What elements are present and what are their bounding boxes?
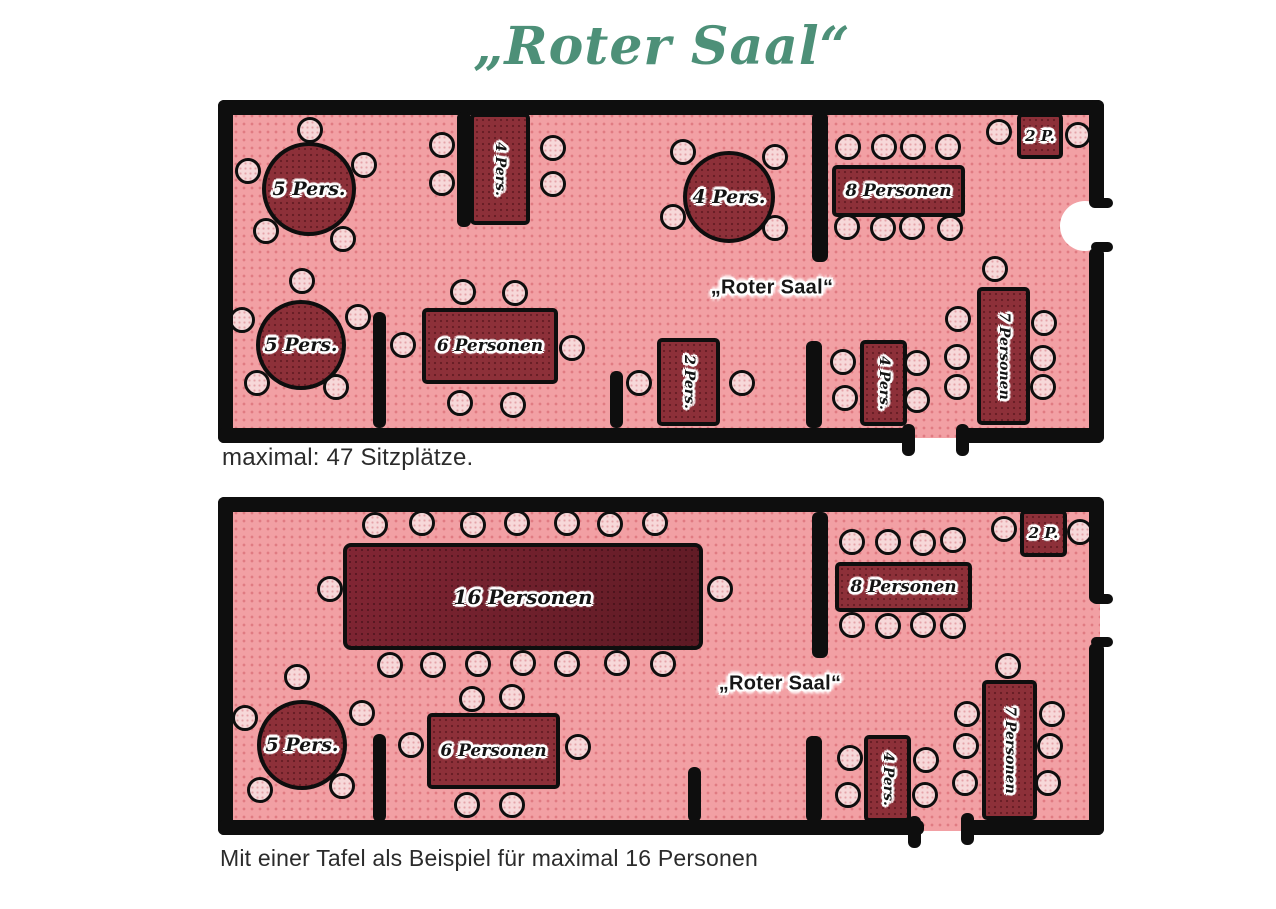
chair [362,512,388,538]
chair [398,732,424,758]
wall-segment [806,736,822,822]
chair [597,511,623,537]
chair [650,651,676,677]
chair [284,664,310,690]
chair [910,612,936,638]
chair [377,652,403,678]
room-name-label: „Roter Saal“ [719,673,842,696]
chair [232,705,258,731]
wall-segment [812,512,828,658]
chair [953,733,979,759]
chair [349,700,375,726]
chair [952,770,978,796]
wall-segment [218,820,924,835]
table-label: 16 Personen [454,587,593,607]
chair [317,576,343,602]
chair [1037,733,1063,759]
table-7-personen: 7 Personen [982,680,1037,820]
chair [465,651,491,677]
chair [499,684,525,710]
chair [910,530,936,556]
chair [1039,701,1065,727]
wall-segment [218,497,1104,512]
wall-segment [688,767,701,822]
chair [707,576,733,602]
wall-segment [1089,643,1104,835]
table-label: 6 Personen [440,743,546,760]
chair [460,512,486,538]
floor-plan-poster: „Roter Saal“ maximal: 47 Sitzplätze. Mit… [0,0,1276,909]
wall-segment [961,813,974,845]
chair [642,510,668,536]
wall-segment [908,816,921,848]
table-label: 5 Pers. [265,736,338,755]
table-label: 7 Personen [1003,706,1017,794]
wall-segment [1089,497,1104,603]
wall-segment [1091,594,1113,604]
table-8-personen: 8 Personen [835,562,972,612]
wall-segment [218,497,233,835]
chair [420,652,446,678]
table-5-pers: 5 Pers. [257,700,347,790]
wall-segment [1091,637,1113,647]
chair [875,613,901,639]
chair [554,510,580,536]
chair [837,745,863,771]
chair [247,777,273,803]
chair [839,529,865,555]
wall-segment [373,734,386,822]
chair [459,686,485,712]
chair [940,613,966,639]
chair [875,529,901,555]
chair [1035,770,1061,796]
chair [839,612,865,638]
chair [991,516,1017,542]
wall-segment [963,820,1104,835]
chair [913,747,939,773]
chair [454,792,480,818]
chair [954,701,980,727]
table-label: 2 P. [1029,526,1059,541]
chair [409,510,435,536]
chair [565,734,591,760]
table-label: 8 Personen [850,579,956,596]
chair [912,782,938,808]
chair [604,650,630,676]
table-6-personen: 6 Personen [427,713,560,789]
table-2-p: 2 P. [1020,510,1067,557]
chair [504,510,530,536]
table-4-pers: 4 Pers. [864,735,911,822]
table-label: 4 Pers. [881,752,895,806]
floor-plan-2: 16 Personen5 Pers.6 Personen8 Personen2 … [0,0,1276,909]
table-16-personen: 16 Personen [343,543,703,650]
chair [510,650,536,676]
chair [995,653,1021,679]
chair [940,527,966,553]
chair [835,782,861,808]
chair [499,792,525,818]
chair [554,651,580,677]
